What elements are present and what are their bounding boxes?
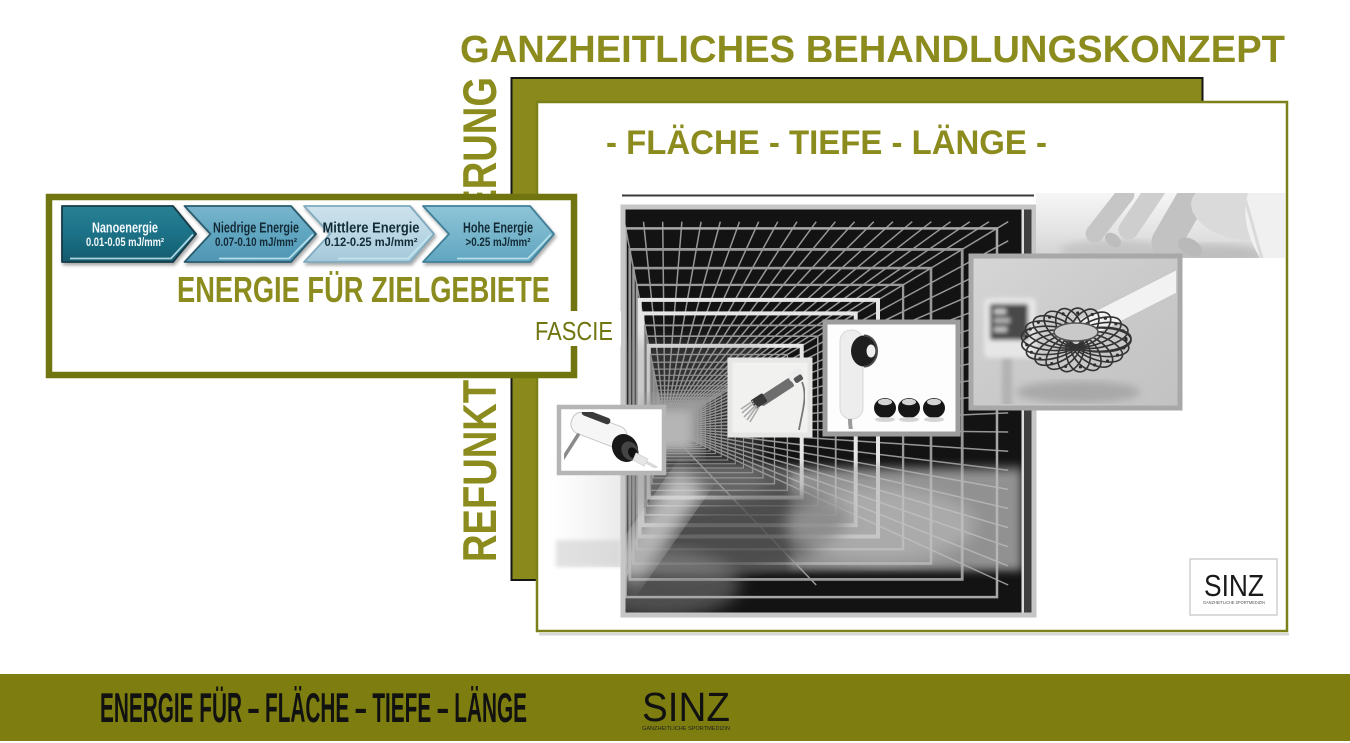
svg-text:- FLÄCHE - TIEFE - LÄNGE -: - FLÄCHE - TIEFE - LÄNGE - — [606, 124, 1047, 162]
svg-text:ENERGIE FÜR – FLÄCHE – TIEFE –: ENERGIE FÜR – FLÄCHE – TIEFE – LÄNGE — [100, 684, 527, 731]
svg-text:SINZ: SINZ — [1204, 568, 1264, 603]
svg-text:FASCIE: FASCIE — [535, 316, 613, 346]
svg-text:SINZ: SINZ — [642, 684, 730, 730]
svg-text:GANZHEITLICHE SPORTMEDIZIN: GANZHEITLICHE SPORTMEDIZIN — [642, 726, 730, 732]
svg-text:Niedrige Energie: Niedrige Energie — [213, 221, 299, 237]
svg-text:>0.25 mJ/mm²: >0.25 mJ/mm² — [466, 237, 531, 249]
svg-text:0.01-0.05 mJ/mm²: 0.01-0.05 mJ/mm² — [86, 237, 164, 249]
svg-text:ENERGIE FÜR ZIELGEBIETE: ENERGIE FÜR ZIELGEBIETE — [177, 269, 550, 310]
svg-text:Nanoenergie: Nanoenergie — [92, 221, 158, 237]
svg-text:0.07-0.10 mJ/mm²: 0.07-0.10 mJ/mm² — [215, 237, 297, 249]
svg-text:Mittlere Energie: Mittlere Energie — [323, 221, 420, 237]
svg-text:GANZHEITLICHES BEHANDLUNGSKONZ: GANZHEITLICHES BEHANDLUNGSKONZEPT — [460, 29, 1285, 71]
svg-text:Hohe Energie: Hohe Energie — [463, 221, 533, 237]
svg-text:GANZHEITLICHE SPORTMEDIZIN: GANZHEITLICHE SPORTMEDIZIN — [1203, 600, 1265, 605]
svg-text:0.12-0.25 mJ/mm²: 0.12-0.25 mJ/mm² — [325, 237, 418, 249]
